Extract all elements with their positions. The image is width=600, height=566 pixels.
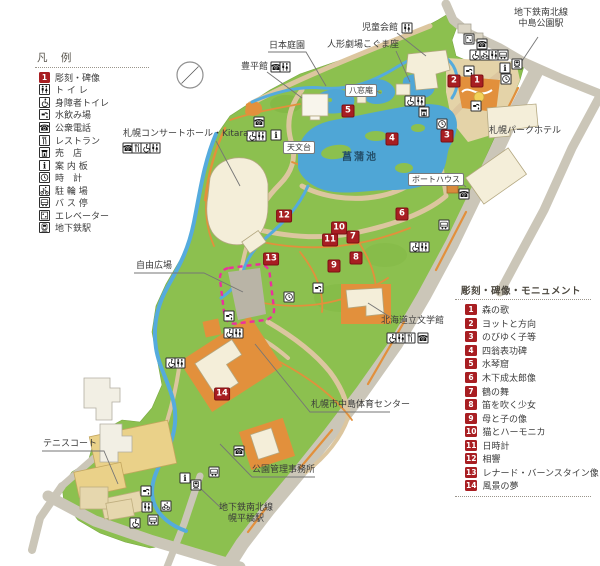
legend-item-label: エレベーター — [55, 209, 109, 222]
marker-icon: 1 — [39, 72, 50, 83]
legend-item: 身障者トイレ — [35, 96, 149, 109]
monument-item: 5 水琴窟 — [455, 357, 591, 371]
monument-item-label: 猫とハーモニカ — [482, 425, 545, 438]
phone-icon: ☎ — [39, 122, 50, 133]
monument-number-badge: 9 — [465, 413, 477, 424]
legend-item-label: 水飲み場 — [55, 108, 91, 121]
monument-item-label: 水琴窟 — [482, 357, 509, 370]
monument-item-label: のびゆく子等 — [482, 330, 536, 343]
monument-item: 1 森の歌 — [455, 303, 591, 317]
monument-number-badge: 14 — [465, 480, 477, 491]
monument-number-badge: 6 — [465, 372, 477, 383]
divider — [35, 67, 149, 68]
legend-items: 1 彫刻・碑像 ト イ レ 身障者トイレ — [35, 71, 149, 234]
monument-item: 14 風景の夢 — [455, 479, 591, 493]
legend-item-label: 時 計 — [55, 171, 82, 184]
legend-title: 凡 例 — [37, 50, 149, 65]
monument-number-badge: 4 — [465, 345, 477, 356]
monument-item: 11 日時計 — [455, 438, 591, 452]
legend-item-label: 公衆電話 — [55, 121, 91, 134]
monument-item-label: 母と子の像 — [482, 412, 527, 425]
monument-number-badge: 2 — [465, 318, 477, 329]
monument-number-badge: 11 — [465, 440, 477, 451]
clock-icon — [39, 172, 50, 183]
monument-number-badge: 7 — [465, 386, 477, 397]
monument-number-badge: 5 — [465, 358, 477, 369]
legend-item-label: 身障者トイレ — [55, 96, 109, 109]
monument-number-badge: 1 — [465, 304, 477, 315]
divider — [455, 496, 591, 497]
restaurant-icon — [39, 135, 50, 146]
monument-number-badge: 10 — [465, 426, 477, 437]
monument-item: 4 四翁表功碑 — [455, 344, 591, 358]
monument-number-badge: 12 — [465, 453, 477, 464]
legend-panel: 凡 例 1 彫刻・碑像 ト イ レ 身障者トイ — [35, 50, 149, 234]
legend-item: 駐 輪 場 — [35, 184, 149, 197]
monument-item-label: 木下成太郎像 — [482, 371, 536, 384]
monument-item-label: 鶴の舞 — [482, 385, 509, 398]
legend-item-label: レストラン — [55, 134, 100, 147]
monument-item-label: 四翁表功碑 — [482, 344, 527, 357]
monument-item-label: レナード・バーンスタイン像 — [482, 466, 598, 479]
monument-item: 7 鶴の舞 — [455, 384, 591, 398]
shop-icon — [39, 147, 50, 158]
divider — [455, 299, 591, 300]
monument-item: 6 木下成太郎像 — [455, 371, 591, 385]
subway-icon — [39, 222, 50, 233]
monument-item: 10 猫とハーモニカ — [455, 425, 591, 439]
legend-item-label: バ ス 停 — [55, 196, 88, 209]
legend-item-label: 売 店 — [55, 146, 82, 159]
monument-item: 9 母と子の像 — [455, 411, 591, 425]
legend-item: 地下鉄駅 — [35, 222, 149, 235]
legend-item-label: 駐 輪 場 — [55, 184, 88, 197]
monuments-title: 彫刻・碑像・モニュメント — [461, 283, 591, 297]
elevator-icon — [39, 210, 50, 221]
monument-number-badge: 13 — [465, 467, 477, 478]
water-icon — [39, 109, 50, 120]
wheelchair-icon — [39, 97, 50, 108]
monument-item-label: ヨットと方向 — [482, 317, 536, 330]
info-icon: i — [39, 160, 50, 171]
monument-item: 2 ヨットと方向 — [455, 317, 591, 331]
legend-item-label: ト イ レ — [55, 83, 88, 96]
legend-item: 売 店 — [35, 146, 149, 159]
bus-icon — [39, 197, 50, 208]
monument-number-badge: 8 — [465, 399, 477, 410]
monument-items: 1 森の歌 2 ヨットと方向 3 のびゆく子等 4 — [455, 303, 591, 493]
monument-item-label: 森の歌 — [482, 303, 509, 316]
monument-item-label: 日時計 — [482, 439, 509, 452]
legend-item: ☎ 公衆電話 — [35, 121, 149, 134]
legend-item: レストラン — [35, 134, 149, 147]
toilet-icon — [39, 84, 50, 95]
monument-item-label: 風景の夢 — [482, 479, 518, 492]
svg-text:☎: ☎ — [40, 123, 49, 132]
monument-item-label: 相響 — [482, 452, 500, 465]
legend-item-label: 彫刻・碑像 — [55, 71, 100, 84]
legend-item: 水飲み場 — [35, 109, 149, 122]
legend-item: エレベーター — [35, 209, 149, 222]
monument-item: 8 笛を吹く少女 — [455, 398, 591, 412]
legend-item: ト イ レ — [35, 84, 149, 97]
legend-item-label: 地下鉄駅 — [55, 221, 91, 234]
svg-text:i: i — [43, 161, 47, 170]
legend-item: 1 彫刻・碑像 — [35, 71, 149, 84]
monument-item: 3 のびゆく子等 — [455, 330, 591, 344]
legend-item: バ ス 停 — [35, 196, 149, 209]
legend-item-label: 案 内 板 — [55, 159, 88, 172]
monuments-panel: 彫刻・碑像・モニュメント 1 森の歌 2 ヨットと方向 3 — [455, 283, 591, 500]
monument-item-label: 笛を吹く少女 — [482, 398, 536, 411]
monument-item: 12 相響 — [455, 452, 591, 466]
legend-item: 時 計 — [35, 171, 149, 184]
monument-number-badge: 3 — [465, 331, 477, 342]
nakajima-park-map: ☎ i ☎ ☎ — [0, 0, 600, 566]
monument-item: 13 レナード・バーンスタイン像 — [455, 466, 591, 480]
legend-item: i 案 内 板 — [35, 159, 149, 172]
bicycle-icon — [39, 185, 50, 196]
